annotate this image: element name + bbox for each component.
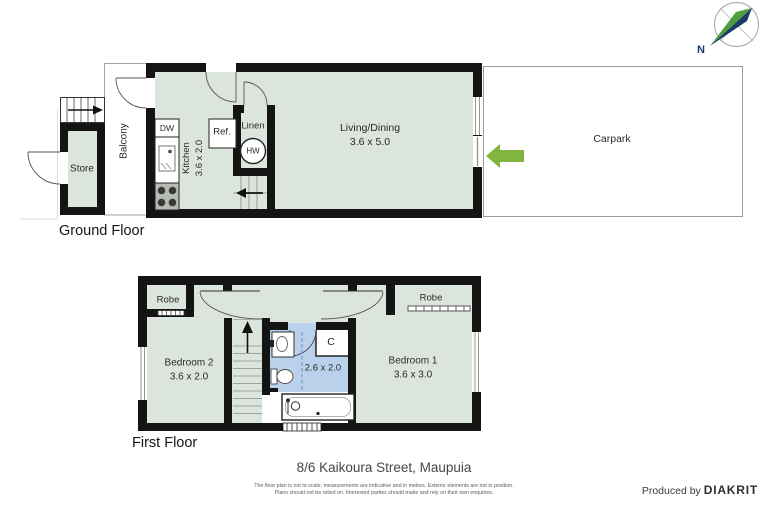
floorplan-drawing: [0, 0, 768, 512]
cupboard-label: C: [327, 336, 335, 348]
vanity: [272, 332, 294, 357]
store-block: [28, 98, 105, 216]
robe-left-label: Robe: [157, 295, 180, 306]
compass-north-label: N: [697, 44, 705, 56]
bathroom-dims-label: 2.6 x 2.0: [305, 363, 341, 374]
compass: [710, 3, 759, 47]
floorplan-page: N Store Balcony DW Kitchen 3.6 x 2.0 Ref…: [0, 0, 768, 512]
robe-right: [408, 306, 470, 311]
hot-water-label: HW: [246, 147, 259, 156]
store-door: [28, 152, 60, 184]
diakrit-logo: DIAKRIT: [704, 483, 758, 497]
bedroom2-label: Bedroom 2 3.6 x 2.0: [165, 357, 214, 384]
balcony-label: Balcony: [119, 123, 130, 159]
store-label: Store: [70, 164, 94, 175]
robe-right-rail: [408, 306, 470, 311]
ground-floor-title: Ground Floor: [59, 223, 144, 239]
dishwasher-label: DW: [160, 123, 174, 133]
bedroom2-stair-wall: [224, 318, 232, 423]
toilet: [277, 370, 293, 384]
sink-faucet: [168, 150, 172, 154]
kitchen-sink: [159, 146, 175, 171]
address-title: 8/6 Kaikoura Street, Maupuia: [0, 460, 768, 475]
carpark-label: Carpark: [593, 133, 630, 145]
toilet-cistern: [271, 369, 277, 384]
fridge-label: Ref.: [213, 127, 230, 138]
stove: [155, 183, 179, 210]
produced-by: Produced by DIAKRIT: [642, 483, 758, 497]
linen-label: Linen: [241, 121, 264, 132]
robe-right-label: Robe: [420, 293, 443, 304]
site-boundary-line: [20, 108, 58, 219]
living-dining-label: Living/Dining 3.6 x 5.0: [340, 121, 400, 149]
bathroom: [262, 318, 356, 431]
first-floor-title: First Floor: [132, 435, 197, 451]
kitchen-label: Kitchen 3.6 x 2.0: [181, 140, 207, 176]
bedroom1-label: Bedroom 1 3.6 x 3.0: [389, 355, 438, 382]
